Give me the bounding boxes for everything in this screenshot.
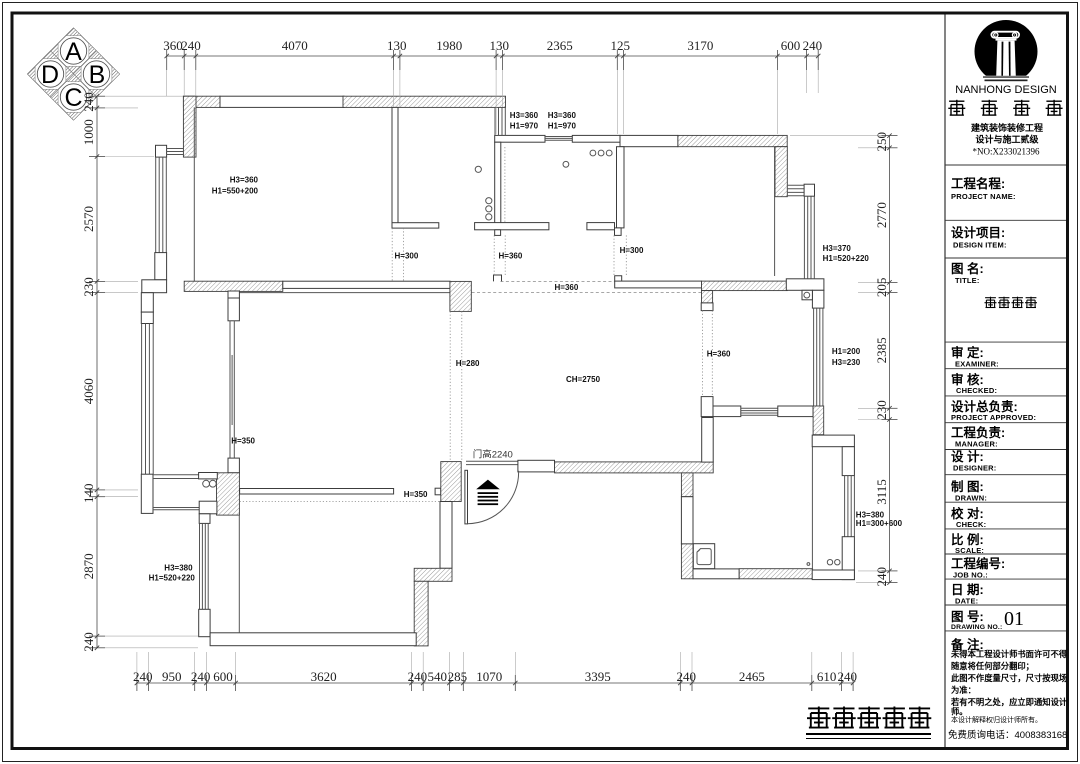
svg-text:600: 600	[213, 669, 233, 684]
svg-text:360: 360	[163, 38, 183, 53]
svg-text:CH=2750: CH=2750	[566, 375, 601, 384]
svg-text:2570: 2570	[81, 206, 96, 232]
svg-text:125: 125	[611, 38, 631, 53]
svg-text:4070: 4070	[282, 38, 308, 53]
svg-text:H=300: H=300	[395, 252, 419, 261]
svg-text:D: D	[41, 61, 59, 89]
svg-text:4060: 4060	[81, 378, 96, 404]
svg-text:JOB NO.:: JOB NO.:	[953, 571, 988, 580]
svg-text:审 定:: 审 定:	[951, 345, 984, 360]
svg-text:图 号:: 图 号:	[951, 609, 984, 624]
svg-text:门高2240: 门高2240	[473, 449, 513, 461]
svg-text:NANHONG DESIGN: NANHONG DESIGN	[955, 84, 1057, 96]
svg-text:DRAWING NO.:: DRAWING NO.:	[951, 624, 1003, 631]
svg-text:工程编号:: 工程编号:	[951, 556, 1005, 571]
svg-text:H1=520+220: H1=520+220	[149, 574, 196, 583]
svg-text:TITLE:: TITLE:	[955, 276, 980, 285]
svg-text:01: 01	[1004, 608, 1024, 630]
svg-text:250: 250	[874, 132, 889, 152]
svg-text:工程名程:: 工程名程:	[951, 176, 1005, 191]
svg-text:PROJECT NAME:: PROJECT NAME:	[951, 192, 1016, 201]
svg-text:H=360: H=360	[707, 350, 731, 359]
svg-text:H1=550+200: H1=550+200	[212, 187, 259, 196]
svg-text:240: 240	[874, 567, 889, 587]
svg-text:H3=370: H3=370	[823, 244, 852, 253]
svg-text:免费质询电话：4008383168: 免费质询电话：4008383168	[948, 729, 1067, 741]
svg-text:H3=380: H3=380	[164, 564, 193, 573]
svg-text:540: 540	[428, 669, 448, 684]
svg-text:B: B	[89, 61, 106, 89]
svg-text:C: C	[64, 84, 82, 112]
svg-text:*NO:X233021396: *NO:X233021396	[973, 147, 1040, 157]
svg-text:建筑装饰装修工程: 建筑装饰装修工程	[971, 122, 1043, 133]
svg-text:师。: 师。	[951, 707, 968, 717]
svg-text:140: 140	[81, 484, 96, 504]
svg-text:H1=970: H1=970	[510, 122, 539, 131]
svg-text:H=300: H=300	[620, 246, 644, 255]
svg-text:2465: 2465	[739, 669, 765, 684]
svg-text:H1=520+220: H1=520+220	[823, 254, 870, 263]
svg-text:H=350: H=350	[404, 490, 428, 499]
svg-text:本设计解释权归设计师所有。: 本设计解释权归设计师所有。	[951, 715, 1042, 724]
svg-text:130: 130	[387, 38, 407, 53]
svg-text:130: 130	[489, 38, 509, 53]
svg-text:设 计:: 设 计:	[951, 449, 984, 464]
svg-text:图 名:: 图 名:	[951, 261, 984, 276]
svg-text:DRAWN:: DRAWN:	[955, 494, 987, 503]
svg-text:610: 610	[817, 669, 837, 684]
svg-text:H=360: H=360	[555, 283, 579, 292]
svg-text:H3=360: H3=360	[230, 176, 259, 185]
svg-text:240: 240	[803, 38, 823, 53]
svg-text:1980: 1980	[436, 38, 462, 53]
svg-text:若有不明之处，应立即通知设计: 若有不明之处，应立即通知设计	[950, 697, 1068, 707]
svg-text:230: 230	[874, 400, 889, 420]
svg-text:审 核:: 审 核:	[951, 372, 984, 387]
svg-text:3395: 3395	[585, 669, 611, 684]
svg-text:2770: 2770	[874, 202, 889, 228]
svg-text:600: 600	[781, 38, 801, 53]
svg-text:DESIGNER:: DESIGNER:	[953, 464, 996, 473]
svg-text:205: 205	[874, 278, 889, 298]
svg-text:未得本工程设计师书面许可不得: 未得本工程设计师书面许可不得	[950, 649, 1068, 659]
svg-text:随意将任何部分翻印；: 随意将任何部分翻印；	[951, 661, 1034, 672]
svg-text:SCALE:: SCALE:	[955, 546, 984, 555]
svg-text:3170: 3170	[687, 38, 713, 53]
svg-text:H1=300+600: H1=300+600	[856, 519, 903, 528]
svg-text:CHECK:: CHECK:	[956, 520, 986, 529]
svg-text:H1=970: H1=970	[548, 122, 577, 131]
svg-text:2365: 2365	[547, 38, 573, 53]
svg-text:设计与施工贰级: 设计与施工贰级	[975, 134, 1039, 145]
svg-text:H3=230: H3=230	[832, 358, 861, 367]
svg-text:240: 240	[81, 92, 96, 112]
svg-text:制 图:: 制 图:	[951, 479, 984, 494]
svg-text:240: 240	[81, 632, 96, 652]
svg-text:230: 230	[81, 277, 96, 297]
svg-text:2870: 2870	[81, 553, 96, 579]
svg-text:MANAGER:: MANAGER:	[955, 440, 998, 449]
svg-text:校 对:: 校 对:	[951, 506, 984, 521]
svg-text:设计总负责:: 设计总负责:	[951, 399, 1018, 414]
svg-text:2385: 2385	[874, 337, 889, 363]
svg-text:EXAMINER:: EXAMINER:	[955, 360, 999, 369]
svg-text:为准：: 为准：	[951, 685, 976, 695]
svg-text:CHECKED:: CHECKED:	[956, 386, 997, 395]
svg-text:240: 240	[181, 38, 201, 53]
svg-text:1070: 1070	[476, 669, 502, 684]
svg-text:3620: 3620	[311, 669, 337, 684]
svg-text:此图不作度量尺寸，尺寸按现场: 此图不作度量尺寸，尺寸按现场	[951, 673, 1067, 683]
svg-text:H=360: H=360	[499, 252, 523, 261]
svg-text:H3=360: H3=360	[510, 111, 539, 120]
svg-text:日 期:: 日 期:	[951, 582, 984, 597]
svg-text:A: A	[65, 38, 82, 66]
svg-text:工程负责:: 工程负责:	[951, 425, 1005, 440]
svg-text:H=350: H=350	[231, 437, 255, 446]
svg-text:3115: 3115	[874, 479, 889, 505]
svg-text:950: 950	[162, 669, 182, 684]
svg-text:比 例:: 比 例:	[951, 532, 984, 547]
svg-text:DESIGN ITEM:: DESIGN ITEM:	[953, 241, 1007, 250]
svg-text:DATE:: DATE:	[955, 597, 978, 606]
svg-text:H1=200: H1=200	[832, 347, 861, 356]
svg-text:H3=360: H3=360	[548, 111, 577, 120]
svg-text:PROJECT APPROVED:: PROJECT APPROVED:	[951, 413, 1036, 422]
svg-text:1000: 1000	[81, 119, 96, 145]
svg-text:设计项目:: 设计项目:	[951, 225, 1005, 240]
svg-text:H=280: H=280	[456, 359, 480, 368]
